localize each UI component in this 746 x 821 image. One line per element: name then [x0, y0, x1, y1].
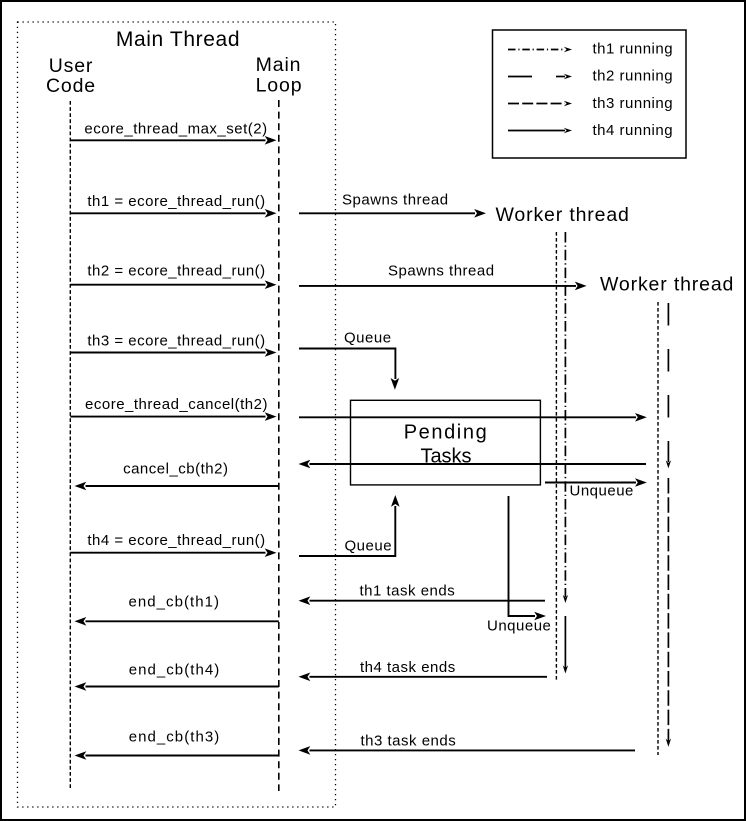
svg-text:Spawns thread: Spawns thread [388, 263, 495, 280]
svg-text:Worker thread: Worker thread [600, 274, 734, 296]
svg-text:User: User [49, 55, 94, 77]
svg-text:th2 = ecore_thread_run(): th2 = ecore_thread_run() [87, 262, 265, 279]
svg-text:cancel_cb(th2): cancel_cb(th2) [123, 461, 228, 478]
svg-text:th1 task ends: th1 task ends [360, 583, 456, 600]
svg-text:th3 task ends: th3 task ends [361, 733, 457, 750]
svg-text:end_cb(th1): end_cb(th1) [128, 594, 220, 611]
svg-text:Main: Main [256, 54, 302, 76]
svg-text:th3 running: th3 running [593, 95, 674, 112]
svg-text:Loop: Loop [256, 75, 303, 97]
svg-text:Queue: Queue [344, 330, 392, 347]
svg-text:Unqueue: Unqueue [487, 618, 551, 635]
svg-text:Worker thread: Worker thread [496, 204, 630, 226]
svg-text:end_cb(th4): end_cb(th4) [129, 662, 221, 679]
svg-text:ecore_thread_cancel(th2): ecore_thread_cancel(th2) [85, 396, 268, 413]
svg-text:Spawns thread: Spawns thread [342, 192, 449, 209]
svg-text:th4 task ends: th4 task ends [360, 659, 456, 676]
svg-text:th1 = ecore_thread_run(): th1 = ecore_thread_run() [87, 193, 265, 210]
svg-text:th4 running: th4 running [593, 122, 674, 139]
svg-text:th3 = ecore_thread_run(): th3 = ecore_thread_run() [87, 332, 265, 349]
svg-text:th2 running: th2 running [593, 68, 674, 85]
svg-text:Main Thread: Main Thread [116, 28, 240, 51]
svg-text:Unqueue: Unqueue [570, 483, 634, 500]
svg-text:Code: Code [46, 75, 96, 97]
svg-text:th4 = ecore_thread_run(): th4 = ecore_thread_run() [87, 532, 265, 549]
svg-text:Queue: Queue [345, 538, 393, 555]
svg-text:end_cb(th3): end_cb(th3) [129, 729, 221, 746]
svg-text:Pending: Pending [404, 422, 489, 444]
svg-text:ecore_thread_max_set(2): ecore_thread_max_set(2) [84, 121, 267, 138]
svg-text:th1 running: th1 running [593, 41, 674, 58]
